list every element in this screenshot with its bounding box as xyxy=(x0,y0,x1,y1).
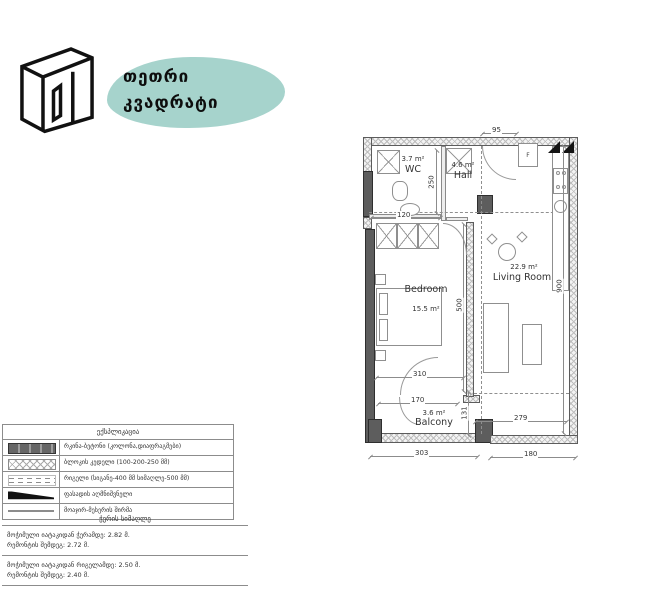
ceiling-line: რემონტის შემდეგ: 2.72 მ. xyxy=(7,540,248,550)
beam-swatch xyxy=(3,472,60,487)
dim-label-95: 95 xyxy=(491,126,502,134)
dim-label-170: 170 xyxy=(410,396,425,404)
facade-marker-swatch xyxy=(3,488,60,503)
concrete-column-left-top xyxy=(363,171,373,217)
logo-cube-icon xyxy=(13,42,101,134)
dining-table xyxy=(498,243,516,261)
closet-2 xyxy=(397,223,418,249)
living-area-label: 22.9 m² xyxy=(494,263,554,271)
divider xyxy=(2,585,248,586)
legend-title: ექსპლიკაცია xyxy=(3,425,233,439)
ceiling-section: ჭერის სიმაღლე მოჭიმული იატაკიდან ჭერამდე… xyxy=(2,513,248,586)
dim-label-900: 900 xyxy=(556,278,564,293)
balcony-name-label: Balcony xyxy=(402,417,466,428)
dim-label-310: 310 xyxy=(412,370,427,378)
hall-area-label: 4.6 m² xyxy=(438,161,488,169)
logo-text-line1: თეთრი xyxy=(123,67,189,87)
sofa xyxy=(483,303,509,373)
ceiling-line: მოჭიმული იატაკიდან ჭერამდე: 2.82 მ. xyxy=(7,530,248,540)
nightstand-2 xyxy=(375,350,386,361)
legend-row-label: რკინა-ბეტონი (კოლონა,დიაფრაგმები) xyxy=(60,440,233,455)
floor-plan-sheet: თეთრი კვადრატი xyxy=(0,0,648,615)
tv-stand xyxy=(522,324,542,365)
bedroom-area-label: 15.5 m² xyxy=(396,305,456,313)
legend-row-beam: რიგელი (სიგანე-400 მმ სიმაღლე-500 მმ) xyxy=(3,471,233,487)
pillow-2 xyxy=(379,319,388,341)
legend-row-block-wall: ბლოკის კედელი (100-200-250 მმ) xyxy=(3,455,233,471)
logo-text-line2: კვადრატი xyxy=(123,93,219,113)
ceiling-item-1: მოჭიმული იატაკიდან ჭერამდე: 2.82 მ. რემო… xyxy=(2,526,248,555)
legend-row-facade: ფასადის აღმნიშვნელი xyxy=(3,487,233,503)
dim-line-250 xyxy=(436,150,437,214)
axis-line-vertical xyxy=(481,146,482,434)
chair-1 xyxy=(486,233,497,244)
legend-row-label: ფასადის აღმნიშვნელი xyxy=(60,488,233,503)
wall-hall-bottom xyxy=(446,217,468,221)
wall-top xyxy=(366,137,578,146)
burner xyxy=(556,185,560,189)
legend-row-label: რიგელი (სიგანე-400 მმ სიმაღლე-500 მმ) xyxy=(60,472,233,487)
ceiling-line: მოჭიმული იატაკიდან რიგელამდე: 2.50 მ. xyxy=(7,560,248,570)
legend-row-concrete: რკინა-ბეტონი (კოლონა,დიაფრაგმები) xyxy=(3,439,233,455)
kitchen-sink xyxy=(554,200,567,213)
wall-bedroom-living xyxy=(466,222,474,397)
legend-row-label: ბლოკის კედელი (100-200-250 მმ) xyxy=(60,456,233,471)
beam-line-living xyxy=(474,393,569,394)
ceiling-title: ჭერის სიმაღლე xyxy=(2,513,248,525)
bed xyxy=(376,288,442,346)
dim-label-500: 500 xyxy=(456,297,464,312)
wall-living-bottom xyxy=(490,435,578,444)
nightstand-1 xyxy=(375,274,386,285)
dim-label-250: 250 xyxy=(428,174,436,189)
dim-label-180: 180 xyxy=(523,450,538,458)
wall-right xyxy=(569,137,578,444)
wall-balcony-bottom xyxy=(368,433,480,443)
chair-2 xyxy=(516,231,527,242)
hall-name-label: Hall xyxy=(438,170,488,181)
living-name-label: Living Room xyxy=(484,272,560,283)
wall-left-upper xyxy=(363,137,372,173)
dim-label-279: 279 xyxy=(513,414,528,422)
stove xyxy=(553,168,568,194)
bedroom-name-label: Bedroom xyxy=(390,284,462,295)
closet-1 xyxy=(376,223,397,249)
pillow-1 xyxy=(379,293,388,315)
concrete-swatch xyxy=(3,440,60,455)
dim-label-303: 303 xyxy=(414,449,429,457)
block-wall-swatch xyxy=(3,456,60,471)
balcony-area-label: 3.6 m² xyxy=(408,409,460,417)
legend-table: ექსპლიკაცია რკინა-ბეტონი (კოლონა,დიაფრაგ… xyxy=(2,424,234,520)
ceiling-item-2: მოჭიმული იატაკიდან რიგელამდე: 2.50 მ. რე… xyxy=(2,556,248,585)
wc-sink xyxy=(392,181,408,201)
floor-plan: F 3.7 m² WC 4.6 m² Hall Bedroom 15.5 m² … xyxy=(360,124,605,474)
fridge: F xyxy=(518,143,538,167)
concrete-column-left-long xyxy=(365,229,375,443)
logo-wordmark: თეთრი კვადრატი xyxy=(107,57,285,128)
wc-area-label: 3.7 m² xyxy=(388,155,438,163)
dim-label-131: 131 xyxy=(461,405,469,420)
burner xyxy=(556,171,560,175)
concrete-column-balcony-left xyxy=(368,419,382,443)
closet-3 xyxy=(418,223,439,249)
dim-label-120: 120 xyxy=(396,211,411,219)
ceiling-line: რემონტის შემდეგ: 2.40 მ. xyxy=(7,570,248,580)
